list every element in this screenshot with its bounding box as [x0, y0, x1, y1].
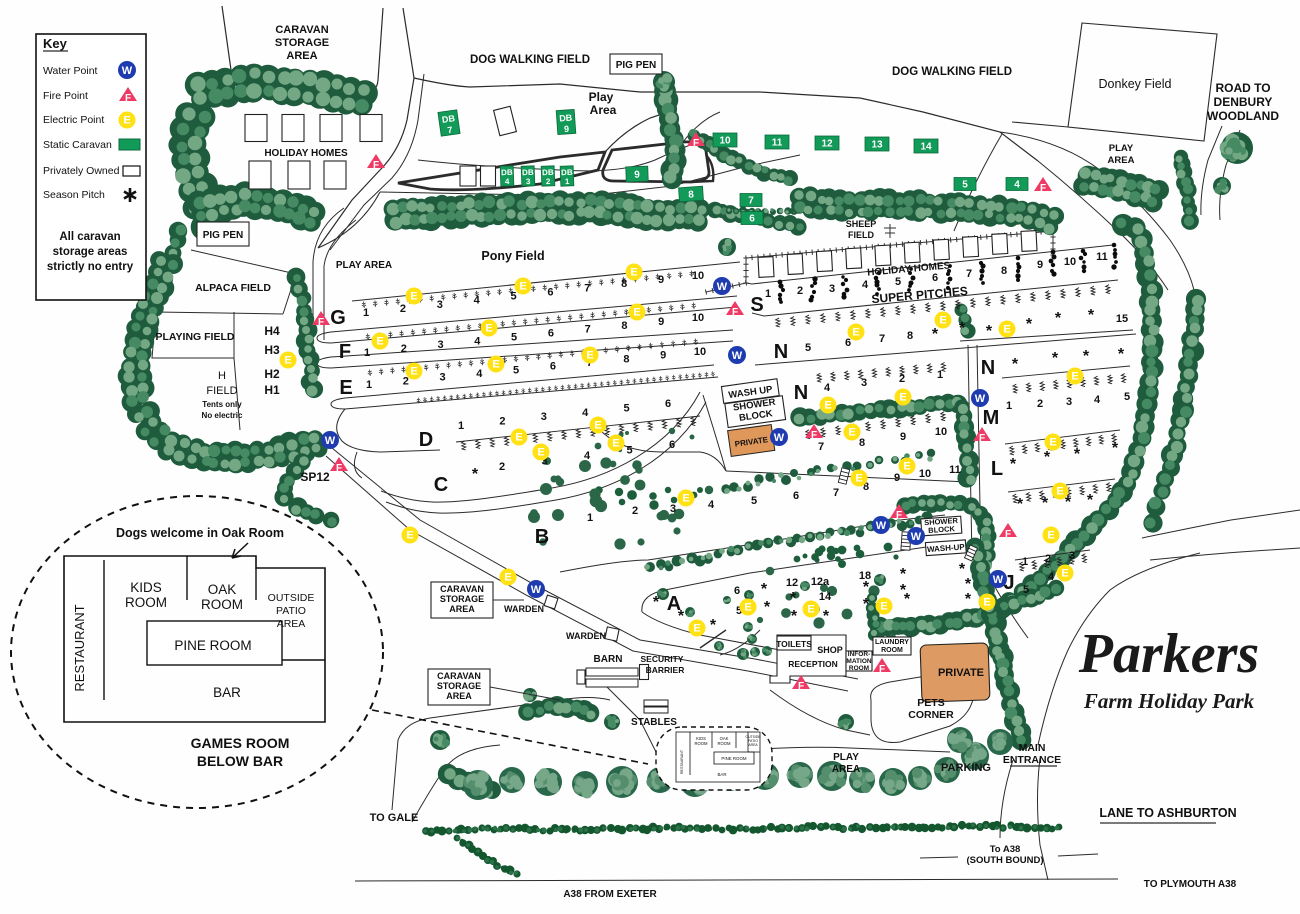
svg-text:12a: 12a [811, 576, 830, 588]
svg-text:STORAGE: STORAGE [440, 594, 484, 604]
svg-text:W: W [122, 65, 133, 77]
svg-text:7: 7 [584, 282, 590, 294]
svg-text:AREA: AREA [1108, 155, 1135, 166]
svg-text:*: * [1044, 449, 1051, 466]
svg-text:SHOP: SHOP [817, 645, 843, 655]
svg-text:Dogs welcome in Oak Room: Dogs welcome in Oak Room [116, 526, 284, 540]
svg-text:*: * [1012, 356, 1019, 373]
svg-text:WOODLAND: WOODLAND [1207, 109, 1279, 123]
svg-text:3: 3 [437, 299, 443, 311]
svg-text:E: E [1003, 324, 1010, 336]
svg-text:*: * [863, 579, 870, 596]
svg-text:6: 6 [749, 214, 755, 225]
svg-text:ROAD TO: ROAD TO [1215, 81, 1270, 95]
svg-text:E: E [630, 267, 637, 279]
svg-text:PLAY: PLAY [833, 752, 859, 763]
svg-text:8: 8 [621, 320, 627, 332]
svg-text:9: 9 [634, 169, 640, 180]
svg-text:ENTRANCE: ENTRANCE [1003, 754, 1061, 766]
svg-text:D: D [419, 429, 433, 451]
svg-text:ROOM: ROOM [717, 741, 731, 746]
svg-text:2: 2 [400, 303, 406, 315]
svg-text:E: E [1047, 530, 1054, 542]
svg-text:8: 8 [859, 437, 865, 449]
svg-text:*: * [1112, 440, 1119, 457]
svg-text:2: 2 [1037, 398, 1043, 410]
svg-text:11: 11 [772, 138, 783, 149]
svg-text:PARKING: PARKING [941, 762, 991, 774]
svg-text:*: * [904, 591, 911, 608]
svg-text:Electric Point: Electric Point [43, 114, 104, 126]
svg-text:4: 4 [476, 368, 483, 380]
svg-text:2: 2 [499, 461, 505, 473]
svg-text:8: 8 [1001, 265, 1007, 277]
svg-text:E: E [848, 427, 855, 439]
svg-text:J: J [1003, 572, 1014, 594]
svg-text:E: E [682, 493, 689, 505]
svg-text:Play: Play [589, 90, 614, 104]
svg-text:E: E [852, 327, 859, 339]
svg-text:HOLIDAY HOMES: HOLIDAY HOMES [264, 148, 348, 159]
svg-text:E: E [519, 281, 526, 293]
svg-text:5: 5 [513, 364, 519, 376]
svg-text:E: E [903, 461, 910, 473]
svg-text:E: E [693, 623, 700, 635]
svg-text:E: E [744, 602, 751, 614]
svg-text:14: 14 [920, 142, 932, 153]
svg-text:7: 7 [585, 324, 591, 336]
svg-text:5: 5 [510, 291, 516, 303]
svg-text:B: B [535, 526, 549, 548]
svg-text:5: 5 [751, 495, 757, 507]
svg-text:W: W [975, 393, 986, 405]
svg-text:H3: H3 [264, 343, 280, 357]
svg-text:3: 3 [861, 377, 867, 389]
svg-text:*: * [1026, 316, 1033, 333]
svg-text:DENBURY: DENBURY [1214, 95, 1273, 109]
svg-text:F: F [979, 433, 985, 444]
svg-text:F: F [125, 93, 131, 104]
svg-text:A: A [667, 593, 681, 615]
svg-text:E: E [406, 530, 413, 542]
svg-text:4: 4 [824, 382, 831, 394]
svg-text:*: * [932, 326, 939, 343]
svg-text:F: F [339, 341, 351, 363]
svg-text:Privately Owned: Privately Owned [43, 165, 120, 177]
svg-text:DB: DB [522, 168, 534, 177]
svg-text:4: 4 [708, 499, 715, 511]
svg-text:*: * [764, 599, 771, 616]
svg-text:2: 2 [401, 343, 407, 355]
svg-text:1: 1 [937, 369, 943, 381]
svg-text:BARN: BARN [594, 654, 623, 665]
svg-text:PATIO: PATIO [276, 605, 306, 617]
svg-text:RESTAURANT: RESTAURANT [72, 604, 87, 691]
svg-text:LANE TO ASHBURTON: LANE TO ASHBURTON [1099, 806, 1236, 820]
svg-text:PETS: PETS [917, 697, 944, 709]
svg-text:E: E [586, 350, 593, 362]
svg-text:E: E [410, 366, 417, 378]
svg-text:ROOM: ROOM [125, 595, 167, 610]
svg-text:1: 1 [366, 379, 372, 391]
svg-text:5: 5 [895, 276, 901, 288]
svg-text:(SOUTH BOUND): (SOUTH BOUND) [966, 855, 1043, 866]
svg-text:*: * [1087, 492, 1094, 509]
svg-text:F: F [896, 510, 902, 521]
svg-text:*: * [790, 590, 797, 607]
svg-text:*: * [900, 566, 907, 583]
svg-text:E: E [855, 473, 862, 485]
svg-text:WARDEN: WARDEN [504, 604, 544, 614]
svg-text:E: E [633, 307, 640, 319]
svg-text:H1: H1 [264, 383, 280, 397]
svg-text:13: 13 [871, 140, 883, 151]
svg-text:F: F [1040, 183, 1046, 194]
svg-text:10: 10 [694, 346, 706, 358]
svg-text:DB: DB [561, 168, 573, 177]
svg-text:9: 9 [900, 431, 906, 443]
svg-text:ROOM: ROOM [201, 597, 243, 612]
svg-text:AREA: AREA [286, 50, 317, 62]
svg-text:1: 1 [363, 307, 369, 319]
svg-text:E: E [1056, 486, 1063, 498]
svg-text:N: N [794, 382, 808, 404]
svg-text:*: * [653, 594, 660, 611]
svg-text:9: 9 [564, 124, 570, 134]
svg-text:ROOM: ROOM [694, 741, 708, 746]
svg-text:E: E [485, 323, 492, 335]
svg-text:F: F [336, 463, 342, 474]
svg-text:1: 1 [1006, 400, 1012, 412]
svg-text:DOG WALKING FIELD: DOG WALKING FIELD [470, 54, 590, 66]
svg-text:N: N [981, 357, 995, 379]
svg-text:Tents only: Tents only [202, 400, 242, 409]
svg-text:E: E [880, 601, 887, 613]
svg-text:E: E [376, 336, 383, 348]
svg-text:AREA: AREA [832, 764, 860, 775]
svg-text:BLOCK: BLOCK [928, 524, 956, 535]
svg-text:E: E [1061, 568, 1068, 580]
svg-text:Pony Field: Pony Field [481, 249, 544, 263]
svg-text:Donkey Field: Donkey Field [1099, 77, 1172, 91]
svg-text:E: E [515, 432, 522, 444]
svg-text:5: 5 [962, 180, 968, 191]
svg-text:STORAGE: STORAGE [275, 37, 329, 49]
svg-text:10: 10 [935, 426, 947, 438]
svg-text:STABLES: STABLES [631, 717, 677, 728]
svg-text:4: 4 [1094, 394, 1101, 406]
svg-text:*: * [823, 608, 830, 625]
svg-text:W: W [911, 531, 922, 543]
svg-text:E: E [1049, 437, 1056, 449]
svg-text:STORAGE: STORAGE [437, 681, 481, 691]
svg-text:DB: DB [501, 168, 513, 177]
svg-text:9: 9 [658, 316, 664, 328]
svg-text:E: E [594, 420, 601, 432]
svg-text:15: 15 [1116, 313, 1128, 325]
svg-text:To A38: To A38 [990, 844, 1021, 855]
svg-text:7: 7 [748, 196, 754, 207]
svg-text:MAIN: MAIN [1019, 742, 1046, 754]
svg-text:4: 4 [862, 279, 869, 291]
svg-text:FIELD: FIELD [206, 385, 237, 397]
svg-text:F: F [1005, 529, 1011, 540]
svg-text:E: E [123, 115, 130, 127]
svg-text:WARDEN: WARDEN [566, 631, 606, 641]
svg-text:KIDS: KIDS [130, 580, 162, 595]
svg-text:5: 5 [805, 342, 811, 354]
svg-text:5: 5 [511, 331, 517, 343]
svg-text:SHEEP: SHEEP [846, 219, 877, 229]
svg-text:*: * [965, 591, 972, 608]
svg-text:3: 3 [439, 372, 445, 384]
svg-text:4: 4 [582, 407, 589, 419]
svg-text:1: 1 [364, 347, 370, 359]
svg-text:E: E [537, 447, 544, 459]
svg-text:4: 4 [474, 295, 481, 307]
svg-text:3: 3 [670, 503, 676, 515]
svg-text:No electric: No electric [202, 411, 243, 420]
svg-text:6: 6 [550, 361, 556, 373]
svg-text:PLAYING FIELD: PLAYING FIELD [156, 331, 235, 343]
svg-text:1: 1 [458, 420, 464, 432]
svg-text:3: 3 [541, 411, 547, 423]
svg-text:14: 14 [819, 591, 832, 603]
svg-text:*: * [1088, 307, 1095, 324]
svg-text:TO PLYMOUTH A38: TO PLYMOUTH A38 [1144, 879, 1237, 890]
svg-text:E: E [939, 315, 946, 327]
svg-text:5: 5 [626, 445, 632, 457]
svg-text:RECEPTION: RECEPTION [788, 659, 838, 669]
svg-text:4: 4 [1048, 571, 1055, 583]
svg-text:AREA: AREA [277, 618, 306, 630]
svg-text:BAR: BAR [213, 685, 241, 700]
svg-text:A38 FROM EXETER: A38 FROM EXETER [563, 889, 657, 900]
svg-text:H: H [218, 370, 226, 382]
svg-text:9: 9 [1037, 259, 1043, 271]
svg-text:11: 11 [1096, 251, 1108, 263]
svg-text:W: W [993, 574, 1004, 586]
svg-text:*: * [1083, 348, 1090, 365]
svg-text:Static Caravan: Static Caravan [43, 139, 112, 151]
svg-text:BARRIER: BARRIER [646, 665, 685, 675]
svg-text:PIG PEN: PIG PEN [203, 230, 244, 241]
svg-text:All caravan: All caravan [59, 231, 120, 243]
svg-text:3: 3 [437, 339, 443, 351]
svg-text:E: E [807, 604, 814, 616]
svg-text:E: E [612, 438, 619, 450]
svg-text:7: 7 [966, 268, 972, 280]
svg-text:4: 4 [474, 335, 481, 347]
svg-text:E: E [492, 359, 499, 371]
svg-text:CARAVAN: CARAVAN [437, 671, 481, 681]
svg-text:OAK: OAK [208, 582, 237, 597]
svg-text:Season Pitch: Season Pitch [43, 189, 105, 201]
svg-text:E: E [983, 597, 990, 609]
svg-text:TOILETS: TOILETS [776, 639, 812, 649]
svg-text:9: 9 [658, 274, 664, 286]
svg-text:Area: Area [590, 103, 617, 117]
svg-text:Key: Key [43, 36, 68, 51]
svg-text:DB: DB [542, 168, 554, 177]
svg-text:PLAY AREA: PLAY AREA [336, 260, 392, 271]
svg-text:GAMES ROOM: GAMES ROOM [191, 735, 290, 751]
svg-text:*: * [761, 581, 768, 598]
svg-text:7: 7 [833, 487, 839, 499]
svg-text:INFOR-: INFOR- [848, 651, 870, 658]
svg-text:6: 6 [793, 490, 799, 502]
svg-text:F: F [373, 160, 379, 171]
svg-text:4: 4 [1014, 180, 1020, 191]
svg-text:6: 6 [547, 286, 553, 298]
svg-text:1: 1 [1022, 556, 1028, 568]
svg-text:8: 8 [623, 353, 629, 365]
svg-text:*: * [791, 608, 798, 625]
svg-text:E: E [899, 392, 906, 404]
svg-text:ALPACA FIELD: ALPACA FIELD [195, 282, 271, 294]
svg-text:10: 10 [719, 136, 731, 147]
svg-text:*: * [710, 617, 717, 634]
svg-text:W: W [732, 350, 743, 362]
svg-text:2: 2 [1045, 553, 1051, 565]
svg-text:*: * [1118, 346, 1125, 363]
svg-text:2: 2 [899, 373, 905, 385]
svg-text:5: 5 [1124, 391, 1130, 403]
svg-text:PRIVATE: PRIVATE [938, 667, 984, 679]
svg-text:H2: H2 [264, 367, 280, 381]
svg-text:N: N [774, 341, 788, 363]
svg-text:E: E [504, 572, 511, 584]
svg-text:F: F [798, 681, 804, 692]
svg-text:storage areas: storage areas [53, 246, 128, 258]
svg-text:6: 6 [548, 328, 554, 340]
svg-text:F: F [318, 317, 324, 328]
svg-text:F: F [811, 430, 817, 441]
svg-text:6: 6 [845, 337, 851, 349]
svg-text:*: * [1010, 456, 1017, 473]
svg-text:*: * [986, 323, 993, 340]
svg-text:W: W [774, 432, 785, 444]
svg-text:Parkers: Parkers [1078, 623, 1259, 685]
svg-text:9: 9 [660, 350, 666, 362]
svg-text:E: E [410, 291, 417, 303]
svg-text:DB: DB [441, 113, 456, 125]
svg-text:Farm Holiday Park: Farm Holiday Park [1083, 689, 1255, 713]
svg-text:10: 10 [1064, 256, 1076, 268]
svg-text:Water Point: Water Point [43, 65, 98, 77]
svg-text:F: F [693, 138, 699, 149]
svg-text:M: M [983, 407, 1000, 429]
svg-text:5: 5 [1023, 584, 1029, 596]
svg-text:*: * [863, 596, 870, 613]
svg-text:7: 7 [818, 441, 824, 453]
svg-text:G: G [330, 307, 346, 329]
svg-text:10: 10 [692, 312, 704, 324]
svg-text:E: E [284, 355, 291, 367]
svg-text:12: 12 [821, 139, 833, 150]
svg-text:E: E [1071, 371, 1078, 383]
svg-text:2: 2 [403, 375, 409, 387]
svg-text:BELOW BAR: BELOW BAR [197, 753, 283, 769]
svg-text:ROOM: ROOM [881, 647, 903, 654]
svg-text:6: 6 [734, 585, 740, 597]
svg-text:MATION: MATION [846, 658, 871, 665]
svg-text:2: 2 [632, 505, 638, 517]
svg-text:W: W [876, 520, 887, 532]
svg-text:DOG WALKING FIELD: DOG WALKING FIELD [892, 66, 1012, 78]
svg-text:5: 5 [624, 402, 630, 414]
svg-text:Fire Point: Fire Point [43, 90, 88, 102]
svg-text:S: S [750, 294, 763, 316]
svg-text:1: 1 [587, 512, 593, 524]
svg-text:AREA: AREA [748, 743, 758, 747]
svg-text:TO GALE: TO GALE [370, 812, 419, 824]
svg-text:2: 2 [499, 416, 505, 428]
svg-text:SECURITY: SECURITY [641, 654, 684, 664]
svg-text:*: * [1052, 350, 1059, 367]
svg-text:10: 10 [919, 468, 931, 480]
svg-text:*: * [1042, 495, 1049, 512]
svg-text:PLAY: PLAY [1109, 143, 1134, 154]
svg-text:8: 8 [621, 278, 627, 290]
svg-text:PINE ROOM: PINE ROOM [174, 638, 251, 653]
svg-text:*: * [1074, 446, 1081, 463]
svg-text:10: 10 [692, 270, 704, 282]
svg-text:W: W [531, 584, 542, 596]
svg-text:3: 3 [829, 283, 835, 295]
svg-text:E: E [339, 377, 352, 399]
svg-text:*: * [959, 320, 966, 337]
svg-text:*: * [1017, 496, 1024, 513]
svg-text:OUTSIDE: OUTSIDE [268, 592, 315, 604]
svg-text:3: 3 [1066, 396, 1072, 408]
svg-text:6: 6 [669, 439, 675, 451]
svg-text:AREA: AREA [449, 604, 475, 614]
svg-text:E: E [824, 400, 831, 412]
svg-text:F: F [732, 307, 738, 318]
svg-text:6: 6 [932, 272, 938, 284]
svg-text:PINE ROOM: PINE ROOM [721, 756, 746, 761]
svg-text:DB: DB [559, 113, 573, 124]
svg-text:3: 3 [1069, 550, 1075, 562]
svg-text:L: L [991, 458, 1003, 480]
svg-text:strictly no entry: strictly no entry [47, 261, 134, 273]
svg-text:C: C [434, 474, 448, 496]
svg-text:12: 12 [786, 577, 798, 589]
svg-text:BAR: BAR [717, 772, 726, 777]
svg-text:W: W [717, 281, 728, 293]
svg-text:CORNER: CORNER [908, 709, 954, 721]
svg-text:PIG PEN: PIG PEN [616, 60, 657, 71]
svg-text:8: 8 [907, 330, 913, 342]
svg-text:LAUNDRY: LAUNDRY [875, 639, 909, 646]
svg-text:SP12: SP12 [300, 470, 330, 484]
svg-text:11: 11 [949, 464, 961, 476]
svg-text:W: W [325, 435, 336, 447]
svg-text:9: 9 [894, 472, 900, 484]
svg-text:2: 2 [797, 285, 803, 297]
svg-text:RESTAURANT: RESTAURANT [680, 749, 684, 774]
svg-text:1: 1 [765, 288, 771, 300]
svg-text:CARAVAN: CARAVAN [275, 24, 328, 36]
svg-text:AREA: AREA [446, 691, 472, 701]
svg-text:*: * [1055, 310, 1062, 327]
svg-text:7: 7 [879, 333, 885, 345]
svg-text:6: 6 [665, 398, 671, 410]
svg-text:*: * [472, 466, 479, 483]
svg-text:CARAVAN: CARAVAN [440, 584, 484, 594]
svg-text:4: 4 [584, 450, 591, 462]
